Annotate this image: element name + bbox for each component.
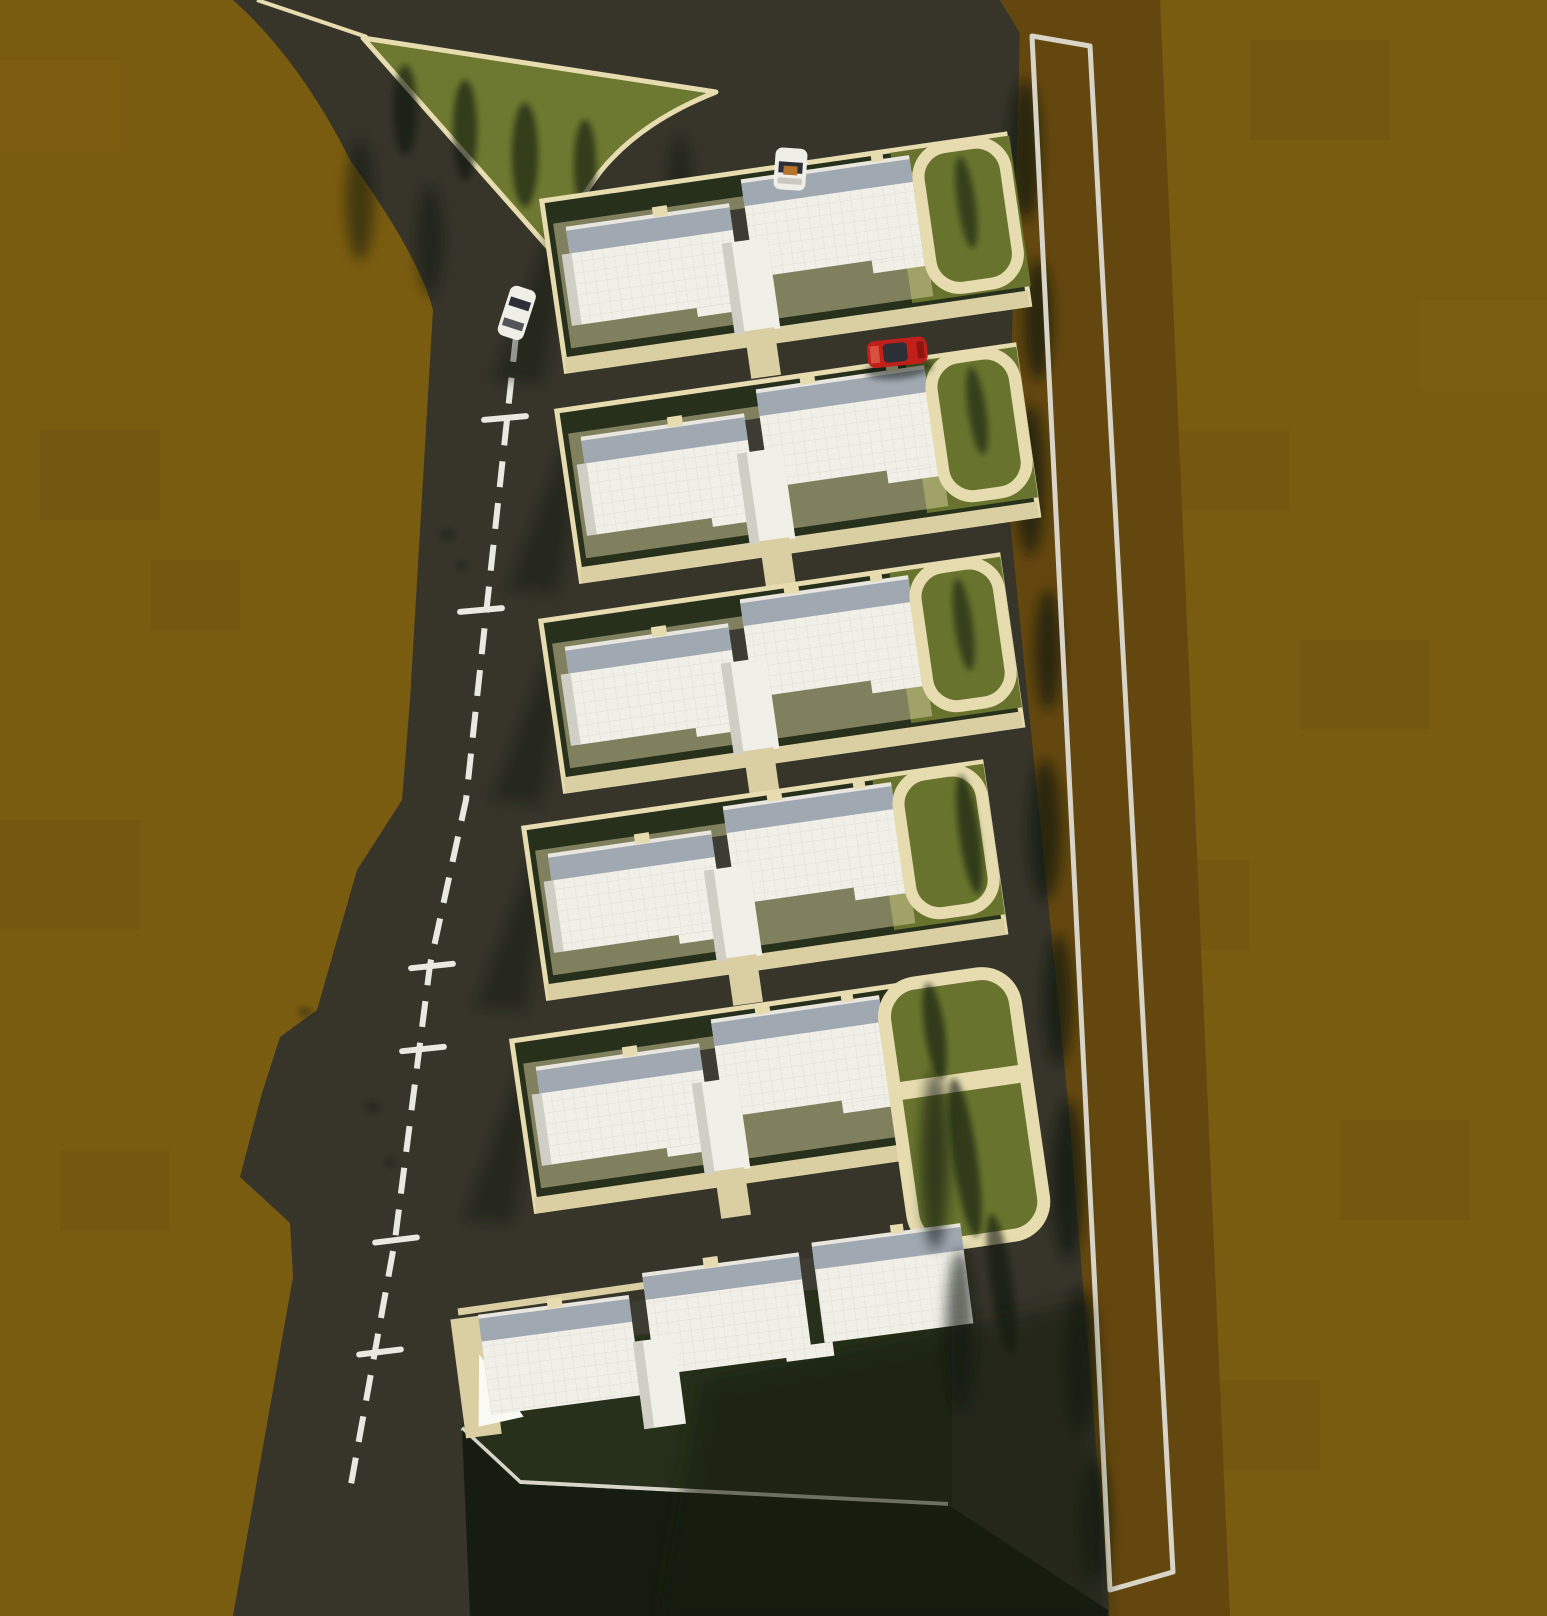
site-plan-render	[0, 0, 1547, 1616]
white-car-parked-top	[773, 147, 808, 191]
render-viewport	[0, 0, 1547, 1616]
parking-loop-4	[895, 767, 998, 918]
